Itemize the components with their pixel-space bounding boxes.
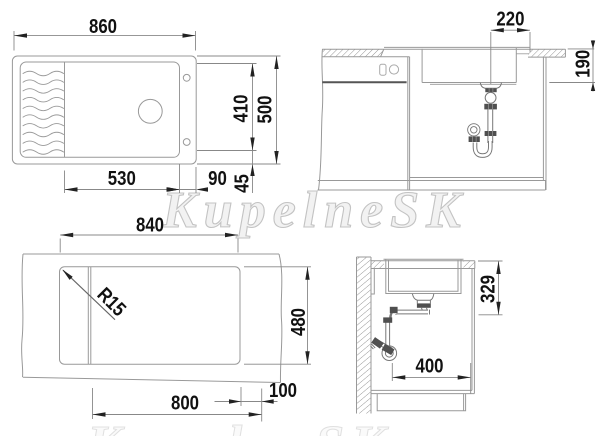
svg-text:329: 329 bbox=[476, 275, 499, 303]
svg-text:400: 400 bbox=[415, 354, 443, 377]
svg-text:480: 480 bbox=[287, 308, 310, 336]
svg-text:220: 220 bbox=[496, 7, 524, 30]
svg-text:410: 410 bbox=[229, 94, 252, 122]
svg-text:860: 860 bbox=[89, 15, 117, 38]
svg-text:530: 530 bbox=[108, 167, 136, 190]
svg-text:840: 840 bbox=[136, 213, 164, 236]
svg-text:500: 500 bbox=[253, 95, 276, 123]
svg-text:800: 800 bbox=[171, 391, 199, 414]
svg-text:190: 190 bbox=[571, 50, 594, 78]
svg-text:90: 90 bbox=[208, 167, 227, 190]
svg-text:45: 45 bbox=[230, 174, 253, 193]
svg-text:KupelneSK: KupelneSK bbox=[86, 416, 393, 436]
svg-text:100: 100 bbox=[269, 379, 297, 402]
